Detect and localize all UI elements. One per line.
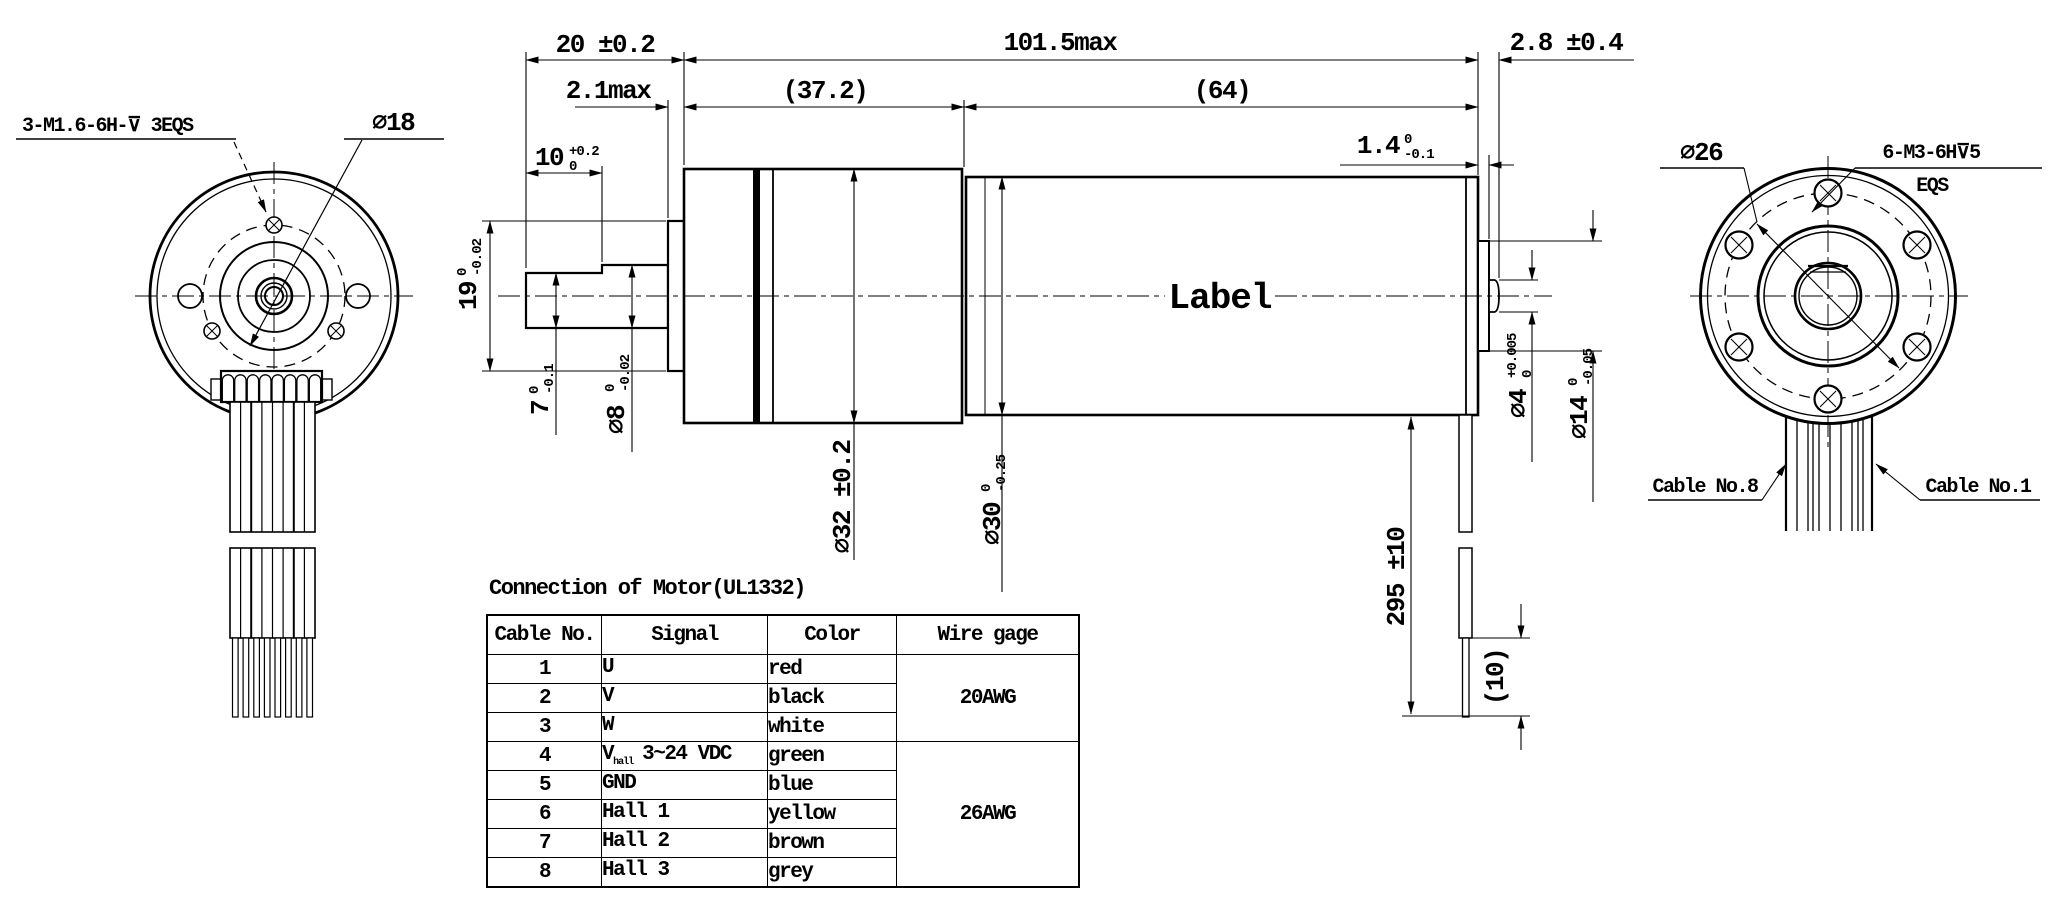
cable-no1-label: Cable No.1: [1925, 476, 2032, 499]
connection-table: Cable No. Signal Color Wire gage 1 U red…: [486, 614, 1080, 888]
col-header-wire-gage: Wire gage: [897, 615, 1080, 655]
dim-front-length: 20 ±0.2: [556, 30, 656, 60]
dim-motor-length: (64): [1194, 76, 1250, 106]
svg-text:-0.1: -0.1: [1404, 147, 1434, 163]
svg-text:+0.005: +0.005: [1505, 333, 1521, 378]
dim-shaft-diameter: ∅8 0 -0.02: [602, 354, 634, 434]
stripped-wires: [233, 638, 313, 717]
cell-signal: Hall 3: [602, 858, 768, 888]
svg-text:0: 0: [455, 268, 471, 276]
svg-text:-0.1: -0.1: [542, 364, 558, 394]
table-title: Connection of Motor(UL1332): [489, 576, 805, 601]
cell-cable-no: 7: [487, 829, 602, 858]
thread-note-label: 6-M3-6H⊽5: [1882, 142, 1980, 165]
motor-drawing-page: 3-M1.6-6H-⊽ 3EQS ∅18 Label: [0, 0, 2048, 922]
dim-motor-diameter: ∅30 0 -0.25: [978, 454, 1010, 545]
svg-text:-0.02: -0.02: [470, 238, 486, 276]
cell-wire-gage-20awg: 20AWG: [897, 655, 1080, 742]
cell-signal: Vhall3~24 VDC: [602, 742, 768, 771]
col-header-signal: Signal: [602, 615, 768, 655]
svg-text:7: 7: [526, 401, 556, 415]
dim-pin-diameter: ∅4 +0.005 0: [1504, 333, 1536, 418]
dim-body-length: 101.5max: [1004, 28, 1118, 58]
dim-strip-length: (10): [1481, 649, 1511, 705]
cable-no8-label: Cable No.8: [1652, 476, 1758, 499]
right-cable-bundle: [1786, 416, 1872, 531]
cell-color: yellow: [768, 800, 897, 829]
left-cable-bundle: [211, 371, 332, 717]
dim-gearbox-diameter: ∅32 ±0.2: [828, 440, 858, 554]
cell-signal: Hall 2: [602, 829, 768, 858]
svg-text:0: 0: [1520, 370, 1536, 378]
cell-signal: U: [602, 655, 768, 684]
svg-text:0: 0: [979, 484, 995, 492]
dia18-label: ∅18: [372, 108, 415, 138]
svg-text:0: 0: [1404, 132, 1412, 148]
dim-boss-thickness: 1.4 0 -0.1: [1357, 131, 1434, 163]
svg-text:∅14: ∅14: [1565, 396, 1595, 439]
svg-text:+0.2: +0.2: [569, 144, 599, 160]
table-row: 1 U red 20AWG: [487, 655, 1079, 684]
svg-text:∅30: ∅30: [978, 502, 1008, 545]
cell-wire-gage-26awg: 26AWG: [897, 742, 1080, 888]
dia26-label: ∅26: [1680, 138, 1723, 168]
svg-text:0: 0: [1566, 378, 1582, 386]
cell-signal: Hall 1: [602, 800, 768, 829]
cell-signal: GND: [602, 771, 768, 800]
svg-text:0: 0: [527, 386, 543, 394]
cell-color: black: [768, 684, 897, 713]
svg-text:1.4: 1.4: [1357, 131, 1400, 161]
cell-cable-no: 5: [487, 771, 602, 800]
svg-text:0: 0: [603, 384, 619, 392]
cell-color: grey: [768, 858, 897, 888]
col-header-color: Color: [768, 615, 897, 655]
cell-cable-no: 6: [487, 800, 602, 829]
svg-text:0: 0: [569, 159, 577, 175]
thread-note-eqs: EQS: [1916, 175, 1949, 198]
dim-shaft-flat-length: 10 +0.2 0: [535, 143, 599, 175]
dim-gearbox-length: (37.2): [783, 76, 868, 106]
svg-text:∅8: ∅8: [602, 405, 632, 434]
cell-color: white: [768, 713, 897, 742]
dim-rear-pin-length: 2.8 ±0.4: [1510, 28, 1624, 58]
dim-pilot-diameter: 19 0 -0.02: [454, 238, 486, 310]
cell-cable-no: 1: [487, 655, 602, 684]
col-header-cable-no: Cable No.: [487, 615, 602, 655]
right-end-view: ∅26 6-M3-6H⊽5 EQS Cable No.8 Cable No.1: [1648, 138, 2042, 531]
cell-cable-no: 8: [487, 858, 602, 888]
motor-label-text: Label: [1168, 278, 1271, 319]
cell-cable-no: 3: [487, 713, 602, 742]
svg-text:10: 10: [535, 143, 564, 173]
dim-boss-diameter: ∅14 0 -0.05: [1565, 348, 1597, 439]
cell-color: blue: [768, 771, 897, 800]
svg-text:∅4: ∅4: [1504, 389, 1534, 418]
svg-text:19: 19: [454, 281, 484, 310]
dim-cable-length: 295 ±10: [1382, 527, 1412, 627]
cell-cable-no: 2: [487, 684, 602, 713]
left-end-view: 3-M1.6-6H-⊽ 3EQS ∅18: [16, 108, 444, 717]
dim-plate-thickness: 2.1max: [566, 76, 652, 106]
thread-note-label: 3-M1.6-6H-⊽ 3EQS: [22, 115, 194, 138]
cell-signal: W: [602, 713, 768, 742]
cell-color: red: [768, 655, 897, 684]
table-row: 4 Vhall3~24 VDC green 26AWG: [487, 742, 1079, 771]
cell-signal: V: [602, 684, 768, 713]
cell-cable-no: 4: [487, 742, 602, 771]
svg-text:-0.25: -0.25: [994, 454, 1010, 492]
rear-cable: [1459, 415, 1472, 717]
svg-text:-0.05: -0.05: [1581, 348, 1597, 386]
cell-color: brown: [768, 829, 897, 858]
cell-color: green: [768, 742, 897, 771]
svg-text:-0.02: -0.02: [618, 354, 634, 392]
